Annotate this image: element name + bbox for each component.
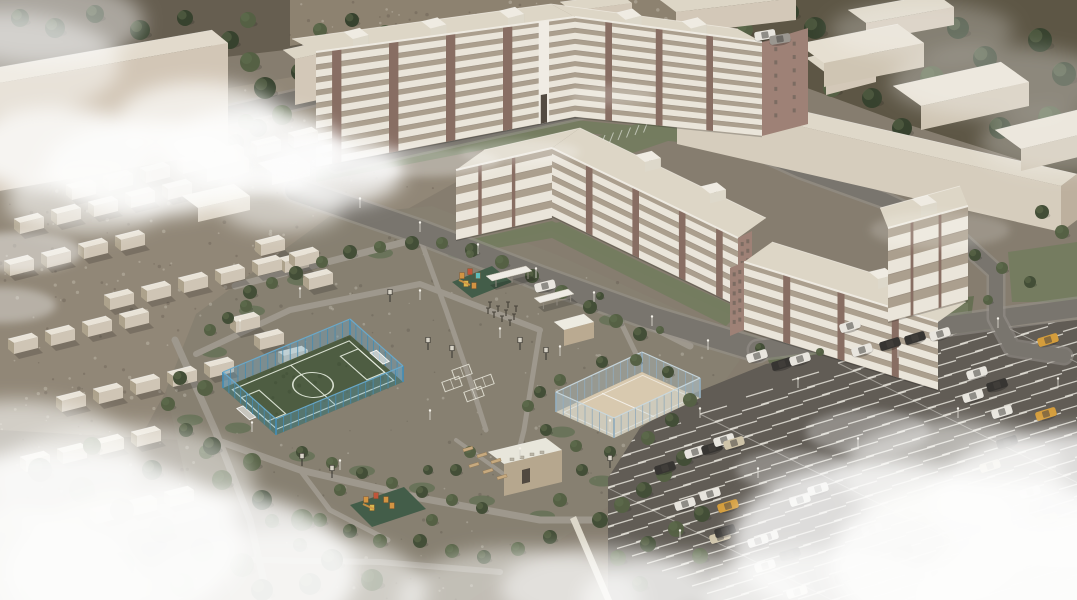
- cloud-puff: [6, 170, 170, 234]
- site-plan-render-canvas: [0, 0, 1077, 600]
- fog-wisp: [870, 212, 1010, 248]
- cloud-puff: [830, 2, 1014, 58]
- fog-wisp: [220, 170, 304, 194]
- fog-wisp: [460, 140, 580, 164]
- fog-wisp: [736, 450, 848, 490]
- clouds-and-fog: [0, 0, 1077, 600]
- architectural-render: [0, 0, 1077, 600]
- fog-wisp: [806, 410, 930, 454]
- fog-wisp: [570, 85, 654, 105]
